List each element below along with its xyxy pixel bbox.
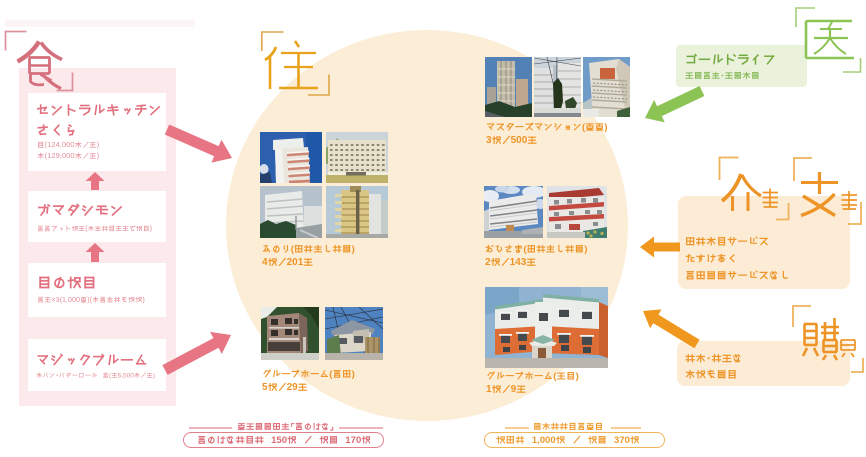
svg-text:500: 500 xyxy=(511,135,528,146)
svg-text:170: 170 xyxy=(345,435,361,446)
svg-text:(: ( xyxy=(523,244,527,255)
svg-text:143: 143 xyxy=(510,257,527,268)
svg-text:): ) xyxy=(150,226,152,233)
svg-text:(: ( xyxy=(582,122,586,133)
svg-text:): ) xyxy=(142,295,144,304)
svg-text:3: 3 xyxy=(486,135,492,146)
svg-text:1: 1 xyxy=(486,384,492,395)
svg-text:(: ( xyxy=(329,369,333,380)
svg-text:)(: )( xyxy=(87,295,92,304)
svg-text:(: ( xyxy=(291,244,295,255)
svg-text:9: 9 xyxy=(511,384,517,395)
svg-text:4: 4 xyxy=(262,257,268,268)
svg-text:6,500: 6,500 xyxy=(118,372,135,379)
svg-text:): ) xyxy=(584,244,587,255)
svg-text:29: 29 xyxy=(287,382,299,393)
svg-text:2: 2 xyxy=(485,257,491,268)
svg-text:(: ( xyxy=(85,226,88,233)
svg-text:150: 150 xyxy=(271,435,287,446)
svg-text:): ) xyxy=(604,122,607,133)
svg-text:201: 201 xyxy=(287,257,304,268)
svg-text:1,000: 1,000 xyxy=(532,435,556,446)
svg-text:): ) xyxy=(352,244,355,255)
svg-text:(: ( xyxy=(109,372,112,379)
svg-text:): ) xyxy=(97,140,100,149)
svg-text:): ) xyxy=(153,372,155,379)
svg-text:×3(1,000: ×3(1,000 xyxy=(51,295,80,304)
svg-text:(124,000: (124,000 xyxy=(45,140,75,149)
svg-text:(129,000: (129,000 xyxy=(45,151,75,160)
svg-text:5: 5 xyxy=(262,382,268,393)
svg-text:370: 370 xyxy=(614,435,630,446)
svg-text:): ) xyxy=(352,369,355,380)
svg-text:): ) xyxy=(576,371,579,382)
svg-text:): ) xyxy=(97,151,100,160)
svg-text:(: ( xyxy=(553,371,557,382)
